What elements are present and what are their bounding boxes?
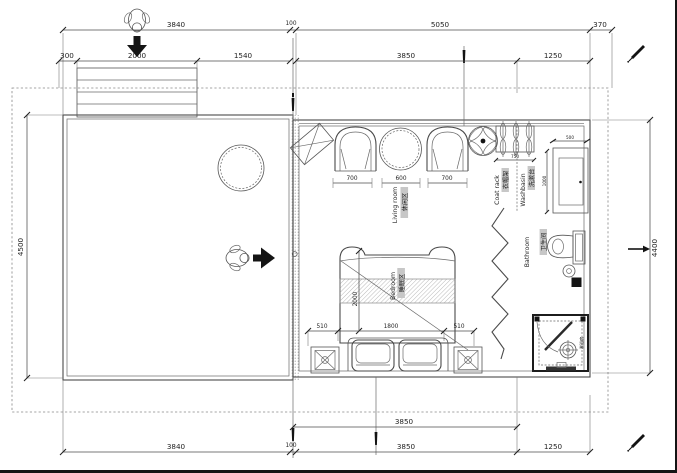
bathroom-label: 卫生间 Bathroom [524,229,548,267]
ceiling-fan-icon [468,126,499,157]
dim-1250-bottom: 1250 [544,442,563,451]
bathroom-label-en: Bathroom [524,237,531,267]
coat-rack: 750 [494,121,536,162]
washbasin: 500 1000 [542,135,590,214]
dim-3850-top: 3850 [397,51,416,60]
washbasin-label-en: Washbasin [520,173,527,206]
partition-wall [291,115,300,380]
dim-4400: 4400 [650,238,659,257]
coat-rack-label-cn: 衣帽架 [502,171,510,190]
left-room-table [218,145,264,191]
dim-basin-width: 500 [566,135,574,140]
dim-sofa-row: 700 600 700 [333,176,467,188]
dim-top-370: 370 [593,20,607,29]
dim-top-100: 100 [285,21,296,27]
shower-label-cn: 淋浴房 [578,337,585,350]
armchair-right [427,127,468,171]
living-room-label: 休闲区 Living room [392,187,409,223]
toilet [548,231,586,287]
dim-510-right: 510 [453,324,464,330]
bench-seat-left [352,340,394,371]
pen-icon-bottom [627,435,644,452]
washbasin-label-cn: 洗漱台 [528,169,536,188]
dim-3850-bottom: 3850 [397,442,416,451]
bathroom-label-cn: 卫生间 [540,233,548,252]
coat-rack-label-en: Coat rack [494,175,501,205]
living-room-label-cn: 休闲区 [401,193,409,212]
dim-600: 600 [395,176,406,182]
dim-top-row-1: 3840 100 5050 370 [60,20,615,120]
dim-1250-top: 1250 [544,51,563,60]
bench-seat-right [399,340,441,371]
living-room-label-en: Living room [392,187,399,223]
section-marker-lines [292,38,466,458]
dim-100-bottom: 100 [285,443,296,449]
dim-700-left: 700 [346,176,357,182]
round-table [380,128,422,170]
dim-bottom-row-2: 3840 100 3850 1250 [60,380,593,455]
bedside-table-right [454,347,482,373]
bedroom-label-cn: 睡眠区 [398,274,406,293]
dim-left-vertical: 4500 [16,112,63,381]
floor-plan-canvas: 3840 100 5050 370 300 2000 1540 3850 125… [0,0,677,473]
dim-510-left: 510 [316,324,327,330]
dim-coat-rack: 750 [511,154,519,159]
coat-rack-label: 衣帽架 Coat rack [494,168,510,205]
waste-bin [572,278,582,288]
pen-icon-top [627,46,644,63]
dim-bottom-row-1: 3850 [290,377,520,452]
dim-top-3840: 3840 [167,20,186,29]
dim-top-5050: 5050 [431,20,450,29]
dim-top-row-2: 300 2000 1540 3850 1250 [56,51,593,93]
dim-basin-depth: 1000 [542,175,547,186]
site-boundary [12,88,608,412]
bed: 2000 [340,247,468,350]
person-top-icon [123,9,151,32]
armchair-left [335,127,376,171]
bedside-table-left [311,347,339,373]
bedroom-label-en: Bedroom [390,272,397,300]
person-room-icon [226,244,249,272]
entry-arrow-right-icon [253,248,275,269]
dim-3850-bottom-inner: 3850 [395,417,414,426]
dim-arrow-icon [643,246,650,253]
dim-bed-length: 2000 [353,291,359,306]
washbasin-label: 洗漱台 Washbasin [520,166,536,207]
dim-300: 300 [60,51,74,60]
dim-right-vertical: 4400 [592,117,659,376]
entrance-steps [77,68,197,117]
dim-3840-bottom: 3840 [167,442,186,451]
dim-1540: 1540 [234,51,253,60]
dim-4500: 4500 [16,237,25,256]
floor-plan-sheet: 3840 100 5050 370 300 2000 1540 3850 125… [0,0,677,473]
dim-1800: 1800 [384,324,399,330]
bedroom-label: 睡眠区 Bedroom [390,268,406,300]
dim-700-right: 700 [441,176,452,182]
shower-cabin: 淋浴房 [533,315,588,371]
folding-partition [492,208,508,359]
